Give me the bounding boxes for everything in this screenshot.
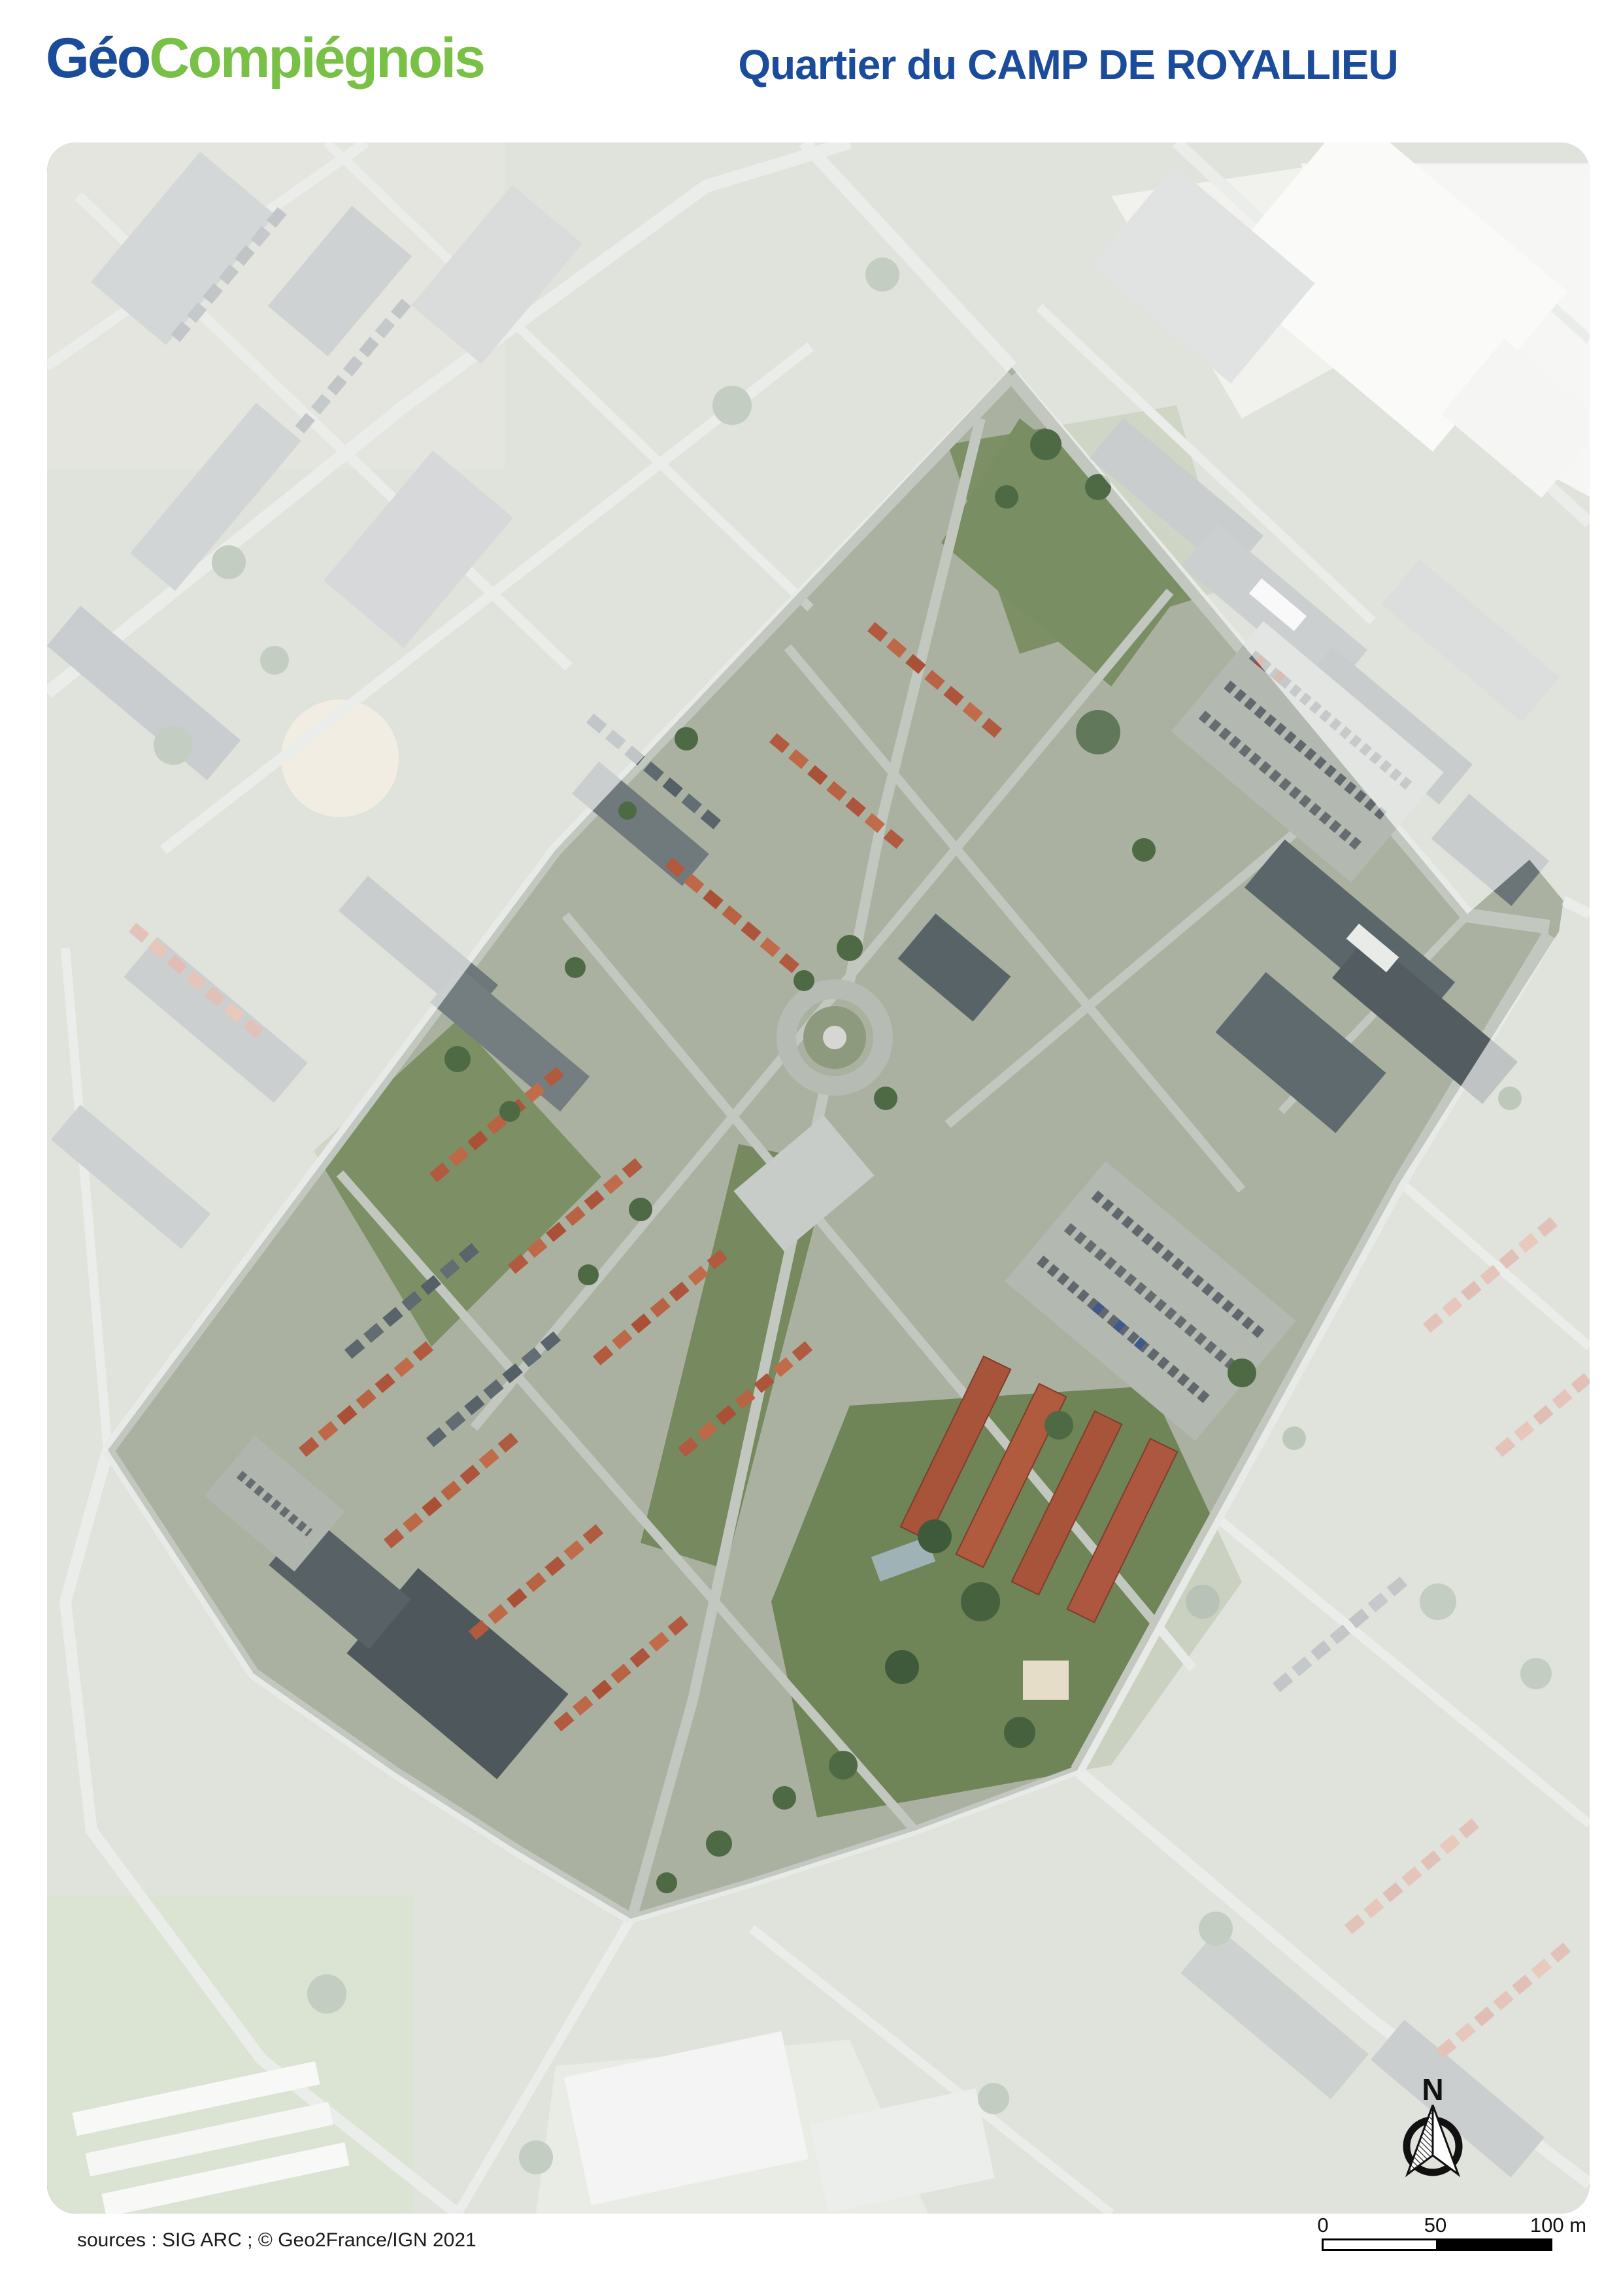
scale-tick-100: 100 m (1530, 2214, 1586, 2237)
scale-tick-0: 0 (1317, 2214, 1328, 2237)
page-title: Quartier du CAMP DE ROYALLIEU (709, 41, 1427, 89)
scale-bar (1322, 2238, 1552, 2251)
map-area: N (0, 0, 1621, 2293)
logo-part-geo: Géo (46, 27, 149, 90)
aerial-map: N (0, 0, 1621, 2293)
sources-credit: sources : SIG ARC ; © Geo2France/IGN 202… (77, 2229, 476, 2252)
north-label: N (1422, 2072, 1443, 2106)
logo-part-compiegnois: Compiégnois (149, 27, 484, 90)
scale-tick-50: 50 (1424, 2214, 1446, 2237)
app-logo: GéoCompiégnois (46, 26, 484, 91)
scale-bar-black-segment (1436, 2240, 1550, 2249)
map-sheet: N GéoCompiégnois Quartier du CAMP DE ROY… (0, 0, 1621, 2293)
